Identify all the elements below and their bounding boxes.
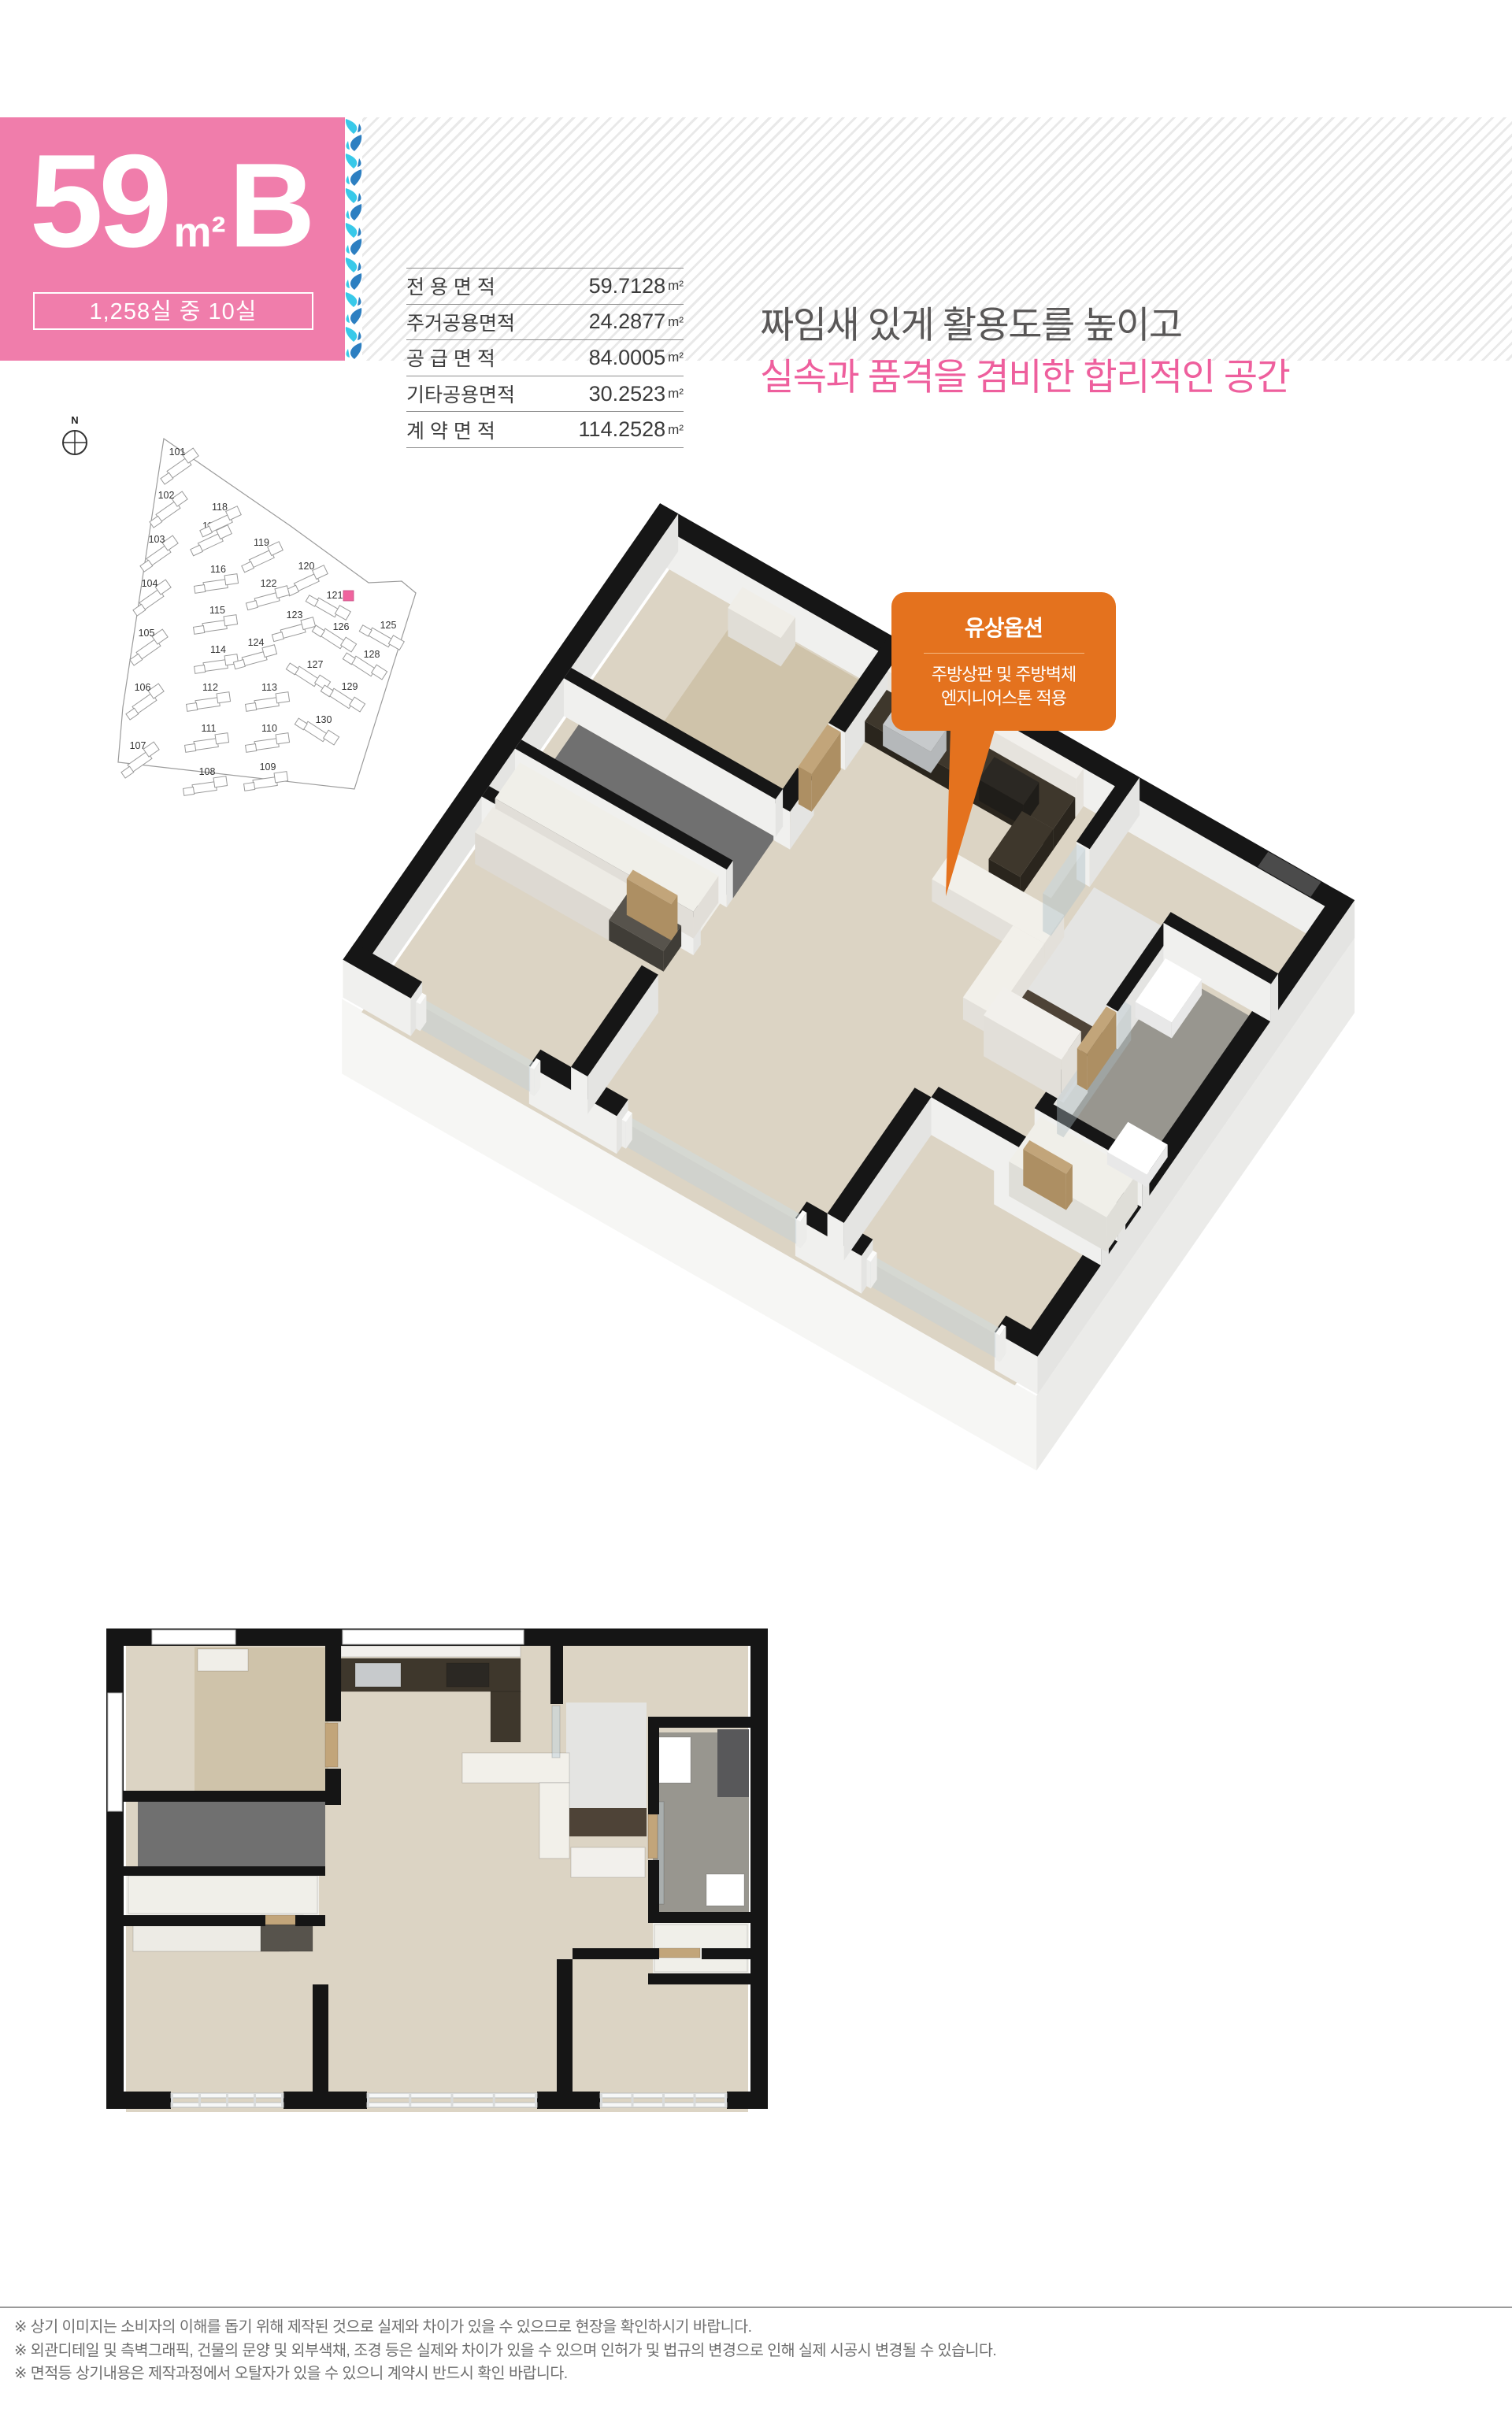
callout-divider — [924, 653, 1084, 654]
footer-note: ※ 면적등 상기내용은 제작과정에서 오탈자가 있을 수 있으니 계약시 반드시… — [14, 2362, 1479, 2386]
headline-line2: 실속과 품격을 겸비한 합리적인 공간 — [760, 351, 1289, 403]
area-unit: m² — [668, 386, 684, 402]
area-value: 59.7128 — [589, 274, 666, 298]
wave-pattern-strip — [345, 117, 362, 361]
unit-type-title: 59 m² B — [0, 135, 345, 267]
site-building-label: 116 — [210, 564, 226, 575]
floor-plan-3d — [228, 441, 1457, 1567]
paid-option-callout: 유상옵션 주방상판 및 주방벽체 엔지니어스톤 적용 — [891, 592, 1116, 731]
area-unit: m² — [668, 422, 684, 438]
site-building-label: 118 — [212, 502, 228, 513]
callout-body: 주방상판 및 주방벽체 엔지니어스톤 적용 — [891, 663, 1116, 710]
area-value: 24.2877 — [589, 309, 666, 334]
area-label: 전 용 면 적 — [406, 272, 495, 300]
area-table: 전 용 면 적59.7128m²주거공용면적24.2877m²공 급 면 적84… — [406, 268, 684, 448]
compass-icon — [63, 431, 87, 454]
footer-note: ※ 외관디테일 및 측벽그래픽, 건물의 문양 및 외부색채, 조경 등은 실제… — [14, 2340, 1479, 2363]
callout-body-line1: 주방상판 및 주방벽체 — [891, 663, 1116, 687]
callout-body-line2: 엔지니어스톤 적용 — [891, 687, 1116, 710]
area-unit: m² — [668, 278, 684, 294]
area-table-row: 전 용 면 적59.7128m² — [406, 268, 684, 304]
headline: 짜임새 있게 활용도를 높이고 실속과 품격을 겸비한 합리적인 공간 — [760, 299, 1289, 403]
site-building-label: 101 — [169, 446, 186, 458]
unit-size: 59 — [30, 135, 168, 267]
area-value: 114.2528 — [579, 417, 666, 442]
footer-notes: ※ 상기 이미지는 소비자의 이해를 돕기 위해 제작된 것으로 실제와 차이가… — [14, 2316, 1479, 2386]
site-building-label: 112 — [202, 682, 218, 693]
area-unit: m² — [668, 314, 684, 330]
banner: 59 m² B 1,258실 중 10실 전 용 면 적59.7128m²주거공… — [0, 117, 1512, 361]
footer-note: ※ 상기 이미지는 소비자의 이해를 돕기 위해 제작된 것으로 실제와 차이가… — [14, 2316, 1479, 2340]
area-label: 공 급 면 적 — [406, 343, 495, 372]
area-table-row: 공 급 면 적84.0005m² — [406, 339, 684, 376]
unit-area-unit: m² — [174, 211, 226, 254]
area-value: 84.0005 — [589, 346, 666, 370]
area-table-row: 주거공용면적24.2877m² — [406, 304, 684, 340]
callout-title: 유상옵션 — [891, 611, 1116, 643]
floor-plan-2d — [106, 1614, 768, 2138]
site-building-label: 103 — [149, 534, 165, 545]
area-table-row: 기타공용면적30.2523m² — [406, 376, 684, 412]
brochure-page: 59 m² B 1,258실 중 10실 전 용 면 적59.7128m²주거공… — [0, 0, 1512, 2427]
unit-type-box: 59 m² B 1,258실 중 10실 — [0, 117, 345, 361]
site-building-label: 102 — [158, 490, 175, 501]
area-unit: m² — [668, 350, 684, 365]
site-building-label: 107 — [130, 740, 146, 751]
site-building-label: 115 — [209, 605, 225, 616]
site-building-label: 111 — [201, 723, 216, 734]
headline-line1: 짜임새 있게 활용도를 높이고 — [760, 299, 1289, 351]
compass-north-label: N — [71, 414, 78, 426]
area-value: 30.2523 — [589, 382, 666, 406]
site-building-label: 114 — [210, 644, 226, 655]
footer-divider — [0, 2307, 1512, 2308]
area-label: 주거공용면적 — [406, 308, 515, 336]
site-building-label: 106 — [135, 682, 151, 693]
site-building-label: 104 — [142, 578, 158, 589]
unit-type-letter: B — [229, 146, 316, 265]
callout-pointer — [929, 728, 1024, 901]
availability-badge: 1,258실 중 10실 — [33, 292, 313, 330]
site-building-label: 105 — [139, 628, 155, 639]
site-building-label: 108 — [199, 766, 216, 777]
area-label: 기타공용면적 — [406, 380, 515, 408]
